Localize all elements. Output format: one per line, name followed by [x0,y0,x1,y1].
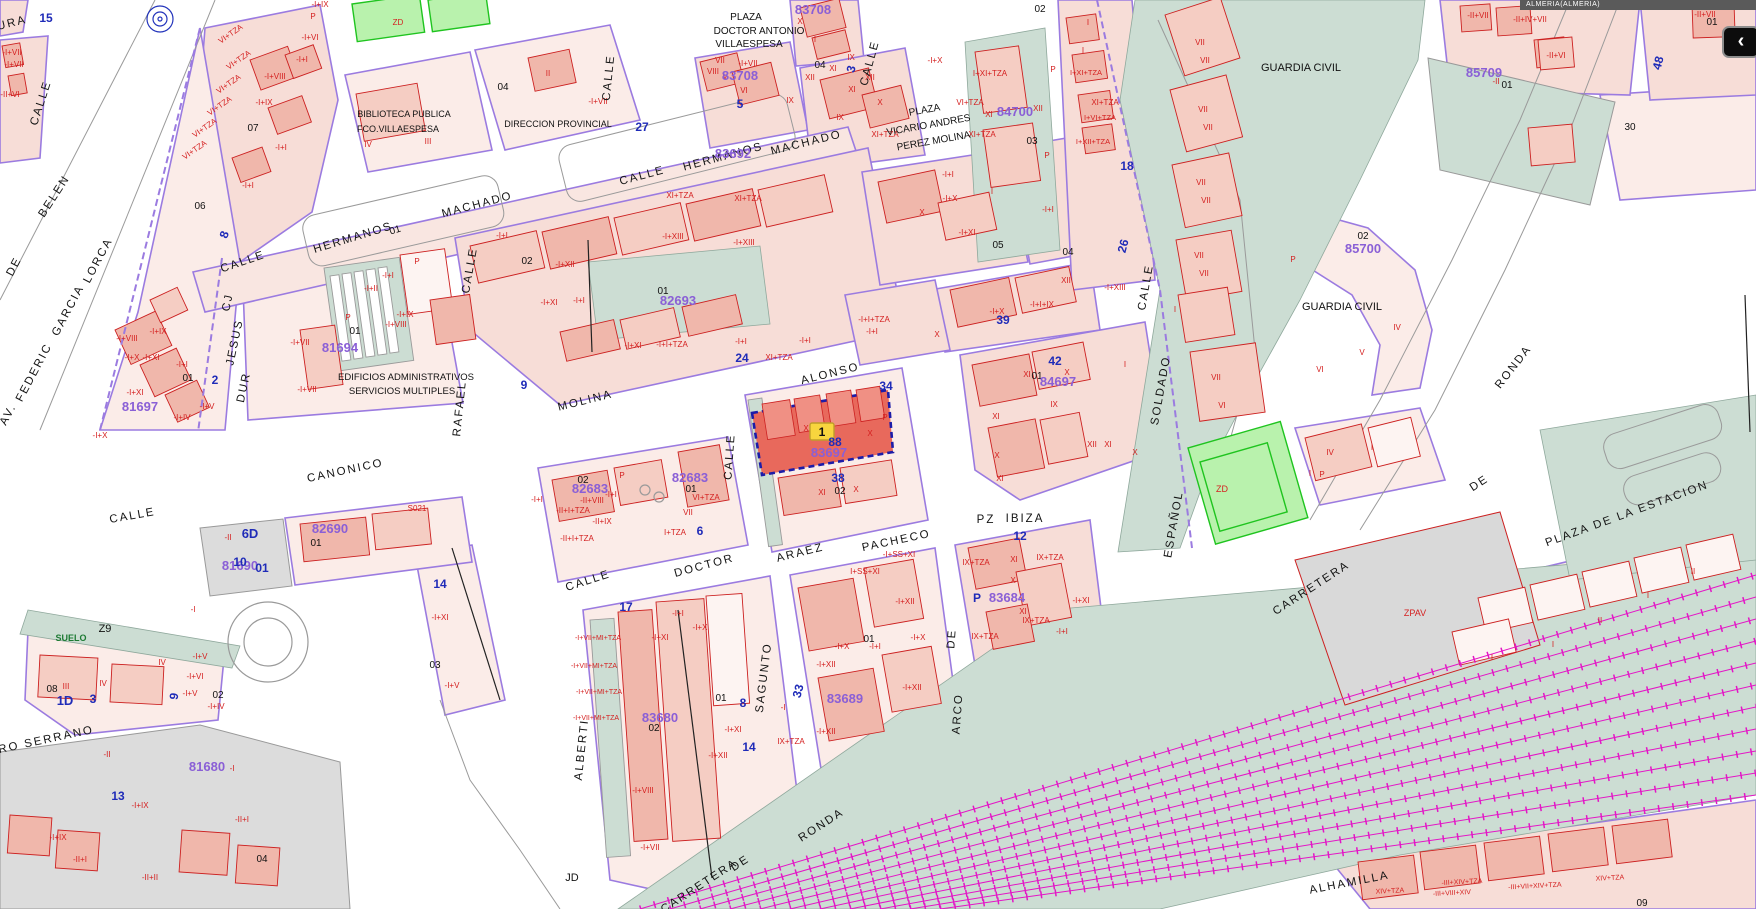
building-code-label: I [1124,360,1126,369]
building-footprint [1528,124,1575,166]
portal-number-label: P [973,591,981,605]
building-code-label: XI [1019,607,1027,616]
plot-number-label: 02 [521,256,533,267]
building-code-label: XII [1087,440,1097,449]
building-code-label: IX+TZA [1036,553,1064,562]
parcel-number-label: 82690 [312,521,348,536]
plot-number-label: FCO.VILLAESPESA [357,124,439,134]
building-code-label: IX [1050,400,1058,409]
portal-number-label: 2 [212,373,219,387]
building-code-label: X [797,17,803,26]
portal-number-label: 15 [39,11,53,25]
building-code-label: X [1010,576,1016,585]
building-code-label: P [1319,470,1324,479]
building-code-label: II [546,69,550,78]
plot-number-label: BIBLIOTECA PUBLICA [357,109,451,119]
building-code-label: I+SS+XI [850,567,880,576]
building-code-label: XII [1061,276,1071,285]
building-footprint [840,460,897,504]
building-footprint [7,815,52,856]
building-code-label: -I+XI [624,341,641,350]
chevron-left-icon: ‹ [1738,31,1745,51]
building-code-label: VII [1211,373,1221,382]
roundabout-icon [147,6,173,32]
building-code-label: -I+VII+MI+TZA [575,635,621,642]
building-footprint [372,508,431,550]
building-footprint [430,294,476,344]
plot-number-label: 01 [685,484,697,495]
building-code-label: -I+XI [958,228,975,237]
building-code-label: -I+VIII [632,786,654,795]
parcel-number-label: 83692 [715,146,751,161]
building-code-label: IX [847,53,855,62]
building-code-label: -I+VII+MI+TZA [571,663,617,670]
building-code-label: III [63,682,70,691]
building-code-label: II [1598,616,1602,625]
building-code-label: VII [1203,123,1213,132]
building-code-label: I [1087,18,1089,27]
building-code-label: -I+IV [173,413,191,422]
building-code-label: -II+VI [0,90,19,99]
parcel-number-label: 83708 [722,68,758,83]
plot-number-label: Z9 [99,623,112,635]
street-name-label: DE [945,628,958,649]
building-code-label: VI [740,86,748,95]
building-code-label: I [1552,640,1554,649]
building-code-label: -I+X [943,194,959,203]
building-code-label: XI+TZA [765,353,793,362]
block-castro-serrano[interactable] [0,725,350,909]
building-code-label: -I+XI [540,298,557,307]
plot-number-label: 01 [349,326,361,337]
building-code-label: XI+TZA [666,191,694,200]
building-code-label: -I+I+TZA [656,340,688,349]
building-code-label: VII [715,56,725,65]
plot-number-label: 04 [256,854,268,865]
portal-number-label: 88 [828,435,842,449]
building-code-label: -I+VII [297,385,316,394]
building-code-label: -II+I+TZA [556,506,590,515]
building-code-label: III [425,137,432,146]
building-code-label: -I+VII [290,338,309,347]
building-footprint [986,604,1034,649]
building-footprint [1484,836,1544,881]
building-code-label: XI [818,488,826,497]
building-footprint [798,578,864,651]
building-code-label: VII [683,508,693,517]
building-code-label: P [414,257,419,266]
building-code-label: I+TZA [664,528,687,537]
parcel-number-label: 81680 [189,759,225,774]
park-circle [228,602,308,682]
building-footprint [882,646,941,712]
building-code-label: -II+I+TZA [560,534,594,543]
building-code-label: X [1132,448,1138,457]
portal-number-label: 38 [831,471,845,485]
building-code-label: P [345,313,350,322]
plot-number-label: 01 [715,693,727,704]
plot-number-label: 06 [194,201,206,212]
building-code-label: -I+I [242,181,254,190]
building-code-label: -I+XII [555,260,574,269]
block-alberti[interactable] [415,545,505,715]
portal-number-label: 5 [737,97,744,111]
building-footprint [1066,14,1099,44]
building-code-label: S021 [408,504,427,513]
pan-left-button[interactable]: ‹ [1722,26,1756,58]
building-code-label: I [814,35,816,44]
curb-line [440,700,560,909]
building-code-label: X [919,208,925,217]
portal-number-label: 10 [233,555,247,569]
building-code-label: XII [1033,104,1043,113]
street-name-label: PZ [977,514,996,526]
building-code-label: -I+II [364,284,378,293]
building-code-label: I+XII+TZA [1076,137,1110,146]
building-code-label: XI [996,474,1004,483]
building-code-label: -I+VII [640,843,659,852]
portal-number-label: 12 [1013,529,1027,543]
building-footprint [110,664,164,705]
building-code-label: -I+XI [651,633,668,642]
roundabout-icon [158,17,162,21]
plot-number-label: GUARDIA CIVIL [1261,62,1341,74]
plot-number-label: 02 [834,486,846,497]
building-code-label: ZD [393,18,404,27]
building-code-label: -I+VII [738,59,757,68]
building-code-label: -I+IX [311,0,329,9]
building-code-label: ZD [1216,484,1228,494]
parcel-number-label: 83689 [827,691,863,706]
building-code-label: VII [1196,178,1206,187]
building-code-label: -I+VI [186,672,203,681]
plot-number-label: 01 [310,538,322,549]
plot-number-label: 07 [247,123,259,134]
block-30[interactable] [1600,85,1756,200]
building-code-label: -I+XI [724,725,741,734]
building-code-label: -I+XIII [1104,283,1126,292]
building-code-label: I [1647,591,1649,600]
plot-number-label: 04 [1062,247,1074,258]
building-footprint [1190,343,1265,422]
plot-number-label: 01 [863,634,875,645]
building-code-label: IX+TZA [962,558,990,567]
land-use-label: SUELO [55,633,86,643]
portal-number-label: 24 [735,351,749,365]
plot-number-label: 02 [212,690,224,701]
park-circle [244,618,292,666]
portal-number-label: 34 [879,379,893,393]
building-code-label: -I+I [275,143,287,152]
building-footprint [1612,819,1672,864]
building-footprint [1172,153,1242,228]
building-code-label: VI [1316,365,1324,374]
portal-number-label: 14 [742,740,756,754]
plot-number-label: 01 [1501,80,1513,91]
municipality-label: ALMERIA(ALMERIA) [1526,1,1600,8]
roundabout-icon [153,12,167,26]
street-name-label: CALLE [109,506,157,526]
building-code-label: -I+I [735,337,747,346]
portal-number-label: 13 [111,789,125,803]
building-code-label: -I [230,764,235,773]
building-code-label: P [882,413,887,422]
building-code-label: -I+XI [126,388,143,397]
building-code-label: X [853,485,859,494]
parcel-number-label: 85700 [1345,241,1381,256]
plot-number-label: EDIFICIOS ADMINISTRATIVOS [338,372,474,383]
building-code-label: XI [848,85,856,94]
building-code-label: IX+TZA [1022,616,1050,625]
building-code-label: -I+IV [207,702,225,711]
building-code-label: IV [158,658,166,667]
building-code-label: -I+I [1042,205,1054,214]
street-name-label: DE [1468,473,1491,494]
building-code-label: -I+X [928,56,944,65]
portal-number-label: 1D [57,693,74,708]
parcel-number-label: 82683 [672,470,708,485]
building-code-label: -I+X [911,633,927,642]
building-code-label: -I+I [942,170,954,179]
building-code-label: P [619,471,624,480]
building-footprint [1178,287,1235,342]
portal-number-label: 39 [996,313,1010,327]
building-code-label: I [1082,46,1084,55]
building-code-label: XI [1104,440,1112,449]
cadastral-map[interactable]: 1-I+VII-I+VII-II+VIPVI+TZAVI+TZAVI+TZAVI… [0,0,1756,909]
portal-number-label: 18 [1120,159,1134,173]
street-name-label: RONDA [1493,343,1534,391]
building-code-label: -I+I [866,327,878,336]
building-code-label: V [1359,348,1365,357]
portal-number-label: 3 [90,692,97,706]
parcel-number-label: 83708 [795,2,831,17]
building-code-label: I+XI+TZA [973,69,1008,78]
building-code-label: -I+IX [131,801,149,810]
building-code-label: I+XI+TZA [1070,68,1102,77]
building-code-label: -I+XII [816,727,835,736]
selected-building-part [826,390,856,427]
plot-number-label: 30 [1624,122,1636,133]
building-code-label: X [994,451,1000,460]
building-footprint [614,460,668,506]
building-code-label: -I+XII [895,597,914,606]
parcel-number-label: 81697 [122,399,158,414]
portal-number-label: 17 [619,600,633,614]
building-code-label: -I+I [531,495,543,504]
parcel-number-label: 83684 [989,590,1026,605]
plot-number-label: 05 [992,240,1004,251]
building-code-label: P [1290,255,1295,264]
building-code-label: -I+IX [49,833,67,842]
building-code-label: XI+TZA [734,194,762,203]
building-code-label: -I+VII+MI+TZA [576,689,622,696]
cadastral-map-viewer: 1-I+VII-I+VII-II+VIPVI+TZAVI+TZAVI+TZAVI… [0,0,1756,909]
building-code-label: X [867,429,873,438]
building-code-label: -I+I [1056,627,1068,636]
building-code-label: -I+X [93,431,109,440]
plot-number-label: 03 [429,660,441,671]
parcel-number-label: 82693 [660,293,696,308]
building-code-label: XI [992,412,1000,421]
building-code-label: -II+I [235,815,249,824]
building-code-label: -I+XII [902,683,921,692]
building-code-label: -I+VII [2,48,21,57]
street-name-label: LORCA [81,236,115,285]
street-name-label: BELEN [36,173,72,220]
building-code-label: -I [191,605,196,614]
building-code-label: -I+VIII [264,72,286,81]
building-code-label: -I+I [382,271,394,280]
building-code-label: -I+I [799,336,811,345]
building-code-label: -I+I [496,231,508,240]
portal-number-label: 14 [433,577,447,591]
portal-number-label: 6 [697,524,704,538]
building-code-label: I [1491,653,1493,662]
plot-number-label: GUARDIA CIVIL [1302,301,1382,313]
building-code-label: P [1050,65,1055,74]
parcel-number-label: 82683 [572,481,608,496]
street-name-label: FEDERIC [14,341,55,404]
building-code-label: -I+XII [708,751,727,760]
building-code-label: I [991,187,993,196]
building-code-label: -I+X [693,623,709,632]
plot-number-label: 03 [1026,136,1038,147]
portal-number-label: 8 [740,696,747,710]
building-code-label: -I+I [573,296,585,305]
building-code-label: IV [1326,448,1334,457]
building-footprint [1040,412,1088,464]
selected-building-part [762,400,795,440]
building-code-label: XI+TZA [1091,98,1119,107]
building-code-label: -I+XIII [733,238,755,247]
building-code-label: -I+V [200,402,216,411]
land-use: SUELO [55,633,86,643]
plot-number-label: JD [565,872,579,884]
building-code-label: -II+VI [1546,51,1565,60]
municipality-bar: ALMERIA(ALMERIA) [1520,0,1756,10]
parcel-number-label: 81694 [322,340,359,355]
building-code-label: I [1309,469,1311,478]
building-code-label: -II [224,533,231,542]
portal-number-label: 9 [521,378,528,392]
building-footprint [988,419,1045,477]
plot-number-label: PLAZA [730,12,762,23]
portal-number-label: 42 [1048,354,1062,368]
plot-number-label: 04 [814,60,826,71]
building-code-label: -II+IV+VII [1513,15,1547,24]
building-code-label: -I+I+IX [1030,300,1055,309]
building-code-label: -II+IX [592,517,612,526]
building-code-label: -I+IX [149,327,167,336]
building-code-label: -II+I [73,855,87,864]
building-code-label: IV [99,679,107,688]
building-code-label: I [1174,305,1176,314]
plot-number-label: 01 [182,373,194,384]
plot-number-label: 09 [1636,898,1648,909]
building-footprint [1548,827,1608,872]
building-code-label: -I+IX [396,310,414,319]
plot-number-label: DIRECCION PROVINCIAL [504,119,612,129]
building-code-label: IX+TZA [777,737,805,746]
building-code-label: -I [781,703,786,712]
plot-number-label: VILLAESPESA [715,39,783,50]
building-code-label: -I+I [672,609,684,618]
building-code-label: IX [786,96,794,105]
plot-number-label: 02 [1034,4,1046,15]
building-code-label: -I+V [183,689,199,698]
building-footprint [706,593,750,705]
building-code-label: -II [103,750,110,759]
building-code-label: -I+VI [301,33,318,42]
building-code-label: IV [1393,323,1401,332]
building-code-label: -I+I+TZA [858,315,890,324]
portal-number-label: 01 [255,561,269,575]
building-code-label: VI+TZA [956,98,984,107]
building-code-label: VIII [707,67,719,76]
portal-number-label: 6D [242,526,259,541]
parcel-number-label: 84700 [997,104,1033,119]
building-code-label: XI [1023,370,1031,379]
plot-number-label: 01 [1706,17,1718,28]
building-code-label: XI [985,110,993,119]
building-code-label: IX+TZA [971,632,999,641]
building-code-label: II [1691,567,1695,576]
building-code-label: XI [829,64,837,73]
sport-field [352,0,425,42]
building-code-label: P [1044,151,1049,160]
plot-number-label: DOCTOR ANTONIO [714,26,805,37]
building-code-label: XII [805,73,815,82]
building-code-label: XI [1010,555,1018,564]
building-code-label: VI [1218,401,1226,410]
building-code-label: VII [1201,196,1211,205]
building-code-label: -I+V [193,652,209,661]
building-code-label: -I+V [445,681,461,690]
building-code-label: IX [836,113,844,122]
portal-number-label: 33 [790,682,807,699]
building-code-label: XI+TZA [968,130,996,139]
building-code-label: -I+SS+XI [883,550,915,559]
building-code-label: I+VI+TZA [1084,113,1116,122]
building-code-label: VII [1195,38,1205,47]
building-footprint [179,830,230,875]
building-code-label: -I+X [125,353,141,362]
building-code-label: -I+XI [142,353,159,362]
building-code-label: -I+I [176,360,188,369]
building-code-label: -I+XII [816,660,835,669]
parcel-number-label: 84697 [1040,374,1076,389]
building-footprint [1072,51,1108,83]
building-code-label: -I+X [835,642,851,651]
building-code-label: IV [364,140,372,149]
building-code-label: X [803,424,809,433]
plot-number-label: SERVICIOS MULTIPLES [349,386,455,397]
building-code-label: -I+XIII [662,232,684,241]
building-code-label: VII [1200,56,1210,65]
sport-field [428,0,490,32]
building-code-label: I [1371,443,1373,452]
portal-number-label: 27 [635,120,649,134]
building-code-label: VII [1194,251,1204,260]
building-code-label: -I+XI [1072,596,1089,605]
building-code-label: -II+II [142,873,158,882]
parcel-number-label: 85709 [1466,65,1502,80]
building-code-label: VII [1198,105,1208,114]
building-code-label: -I+VII [4,60,23,69]
building-code-label: VII [1199,269,1209,278]
street-name-label: ALBERTI [573,718,591,781]
